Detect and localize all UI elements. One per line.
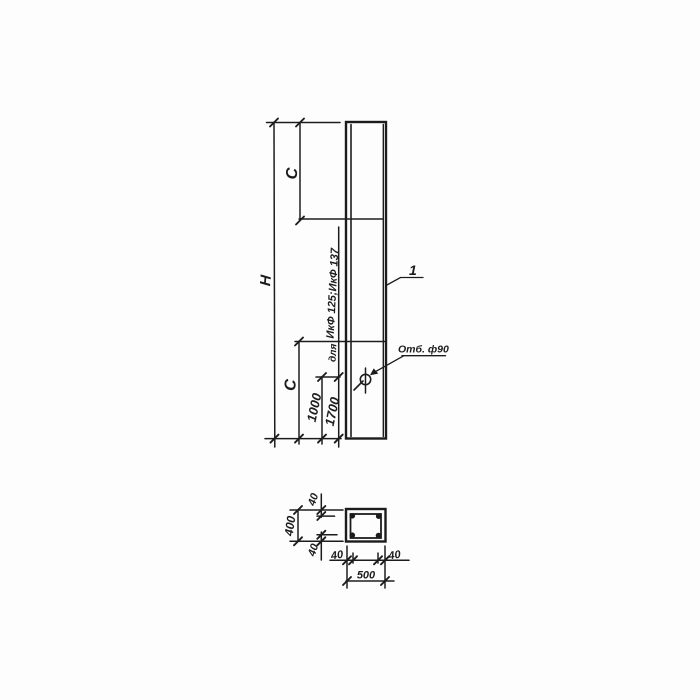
svg-text:1: 1 xyxy=(409,262,417,278)
svg-text:40: 40 xyxy=(329,549,345,563)
svg-text:1700: 1700 xyxy=(322,395,343,427)
svg-text:для: для xyxy=(328,343,340,362)
svg-text:40: 40 xyxy=(387,549,403,563)
svg-text:500: 500 xyxy=(357,570,376,582)
svg-text:C: C xyxy=(284,167,302,180)
svg-text:400: 400 xyxy=(282,515,299,538)
svg-text:Отб. ф90: Отб. ф90 xyxy=(398,344,449,356)
svg-text:C: C xyxy=(282,378,300,391)
svg-text:40: 40 xyxy=(306,491,322,508)
svg-text:H: H xyxy=(257,273,275,286)
